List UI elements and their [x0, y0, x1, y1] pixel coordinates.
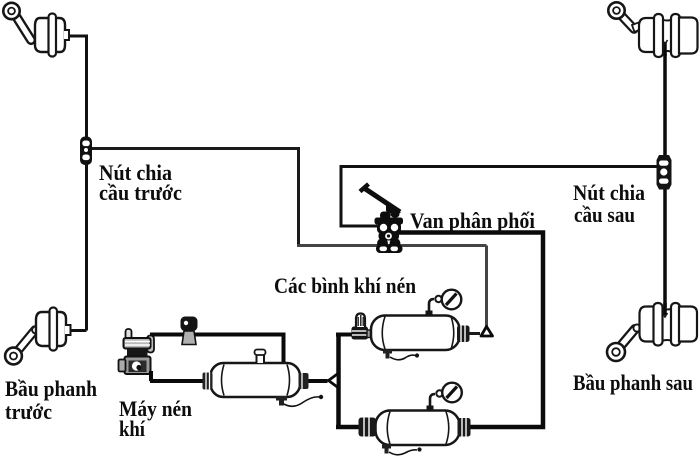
svg-text:cầu trước: cầu trước — [99, 180, 182, 205]
svg-text:Van phân phối: Van phân phối — [410, 208, 535, 233]
svg-text:trước: trước — [5, 399, 52, 424]
svg-text:khí: khí — [119, 416, 146, 441]
svg-text:Bầu phanh sau: Bầu phanh sau — [573, 370, 693, 395]
svg-text:Bầu phanh: Bầu phanh — [5, 376, 97, 401]
svg-text:Các bình khí nén: Các bình khí nén — [274, 273, 416, 298]
svg-text:cầu sau: cầu sau — [574, 202, 635, 227]
